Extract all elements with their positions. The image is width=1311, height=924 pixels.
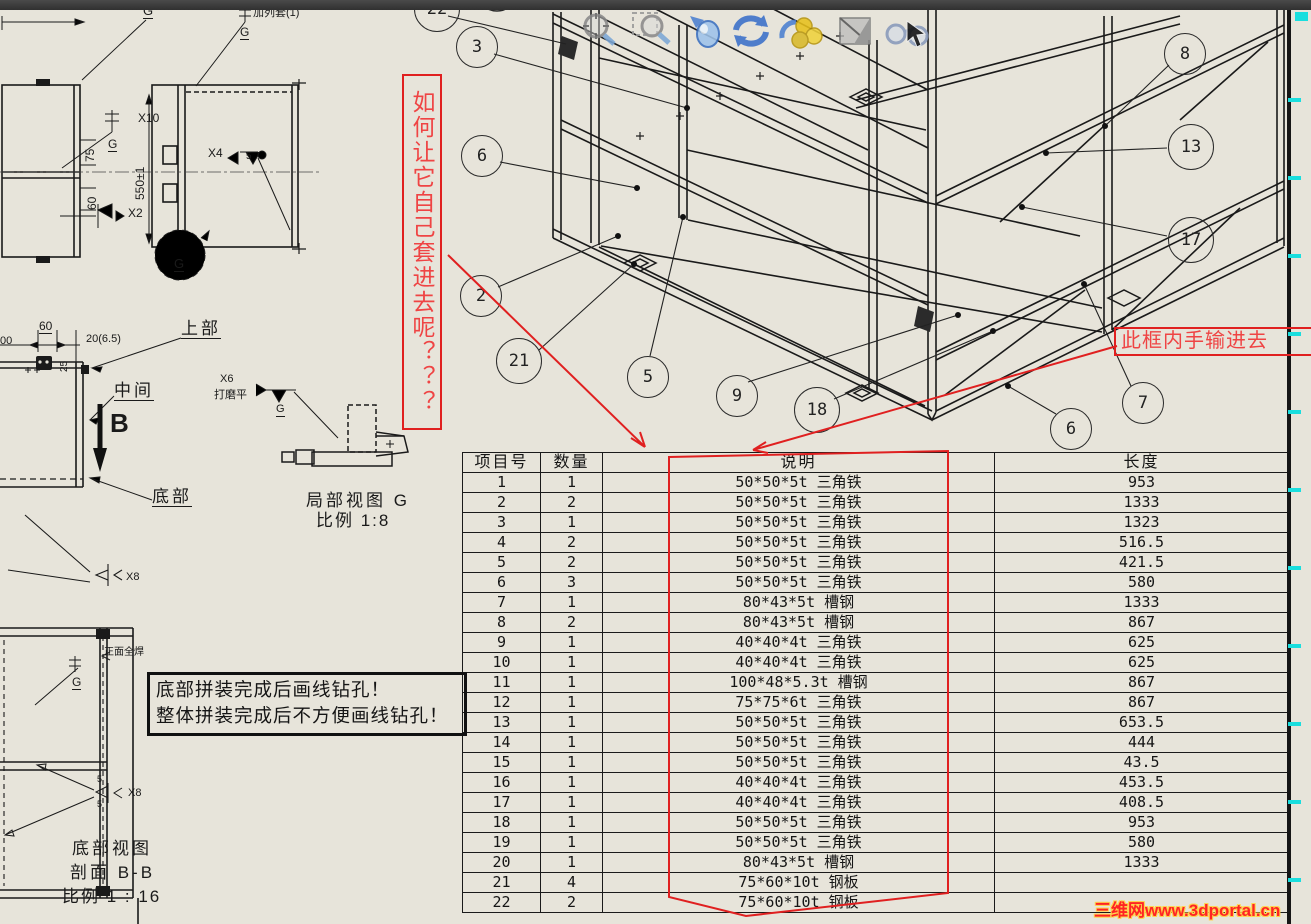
window-top-bar — [0, 0, 1311, 10]
red-annotation-layer — [0, 0, 1311, 924]
vertical-question-note[interactable]: 如何让它自己套进去呢？？？ — [402, 74, 442, 430]
watermark: 三维网www.3dportal.cn — [1094, 896, 1280, 921]
manual-input-note[interactable]: 此框内手输进去 — [1114, 327, 1311, 356]
cad-drawing-sheet: 项目号 数量 说明 长度 1150*50*5t 三角铁9532250*50*5t… — [0, 0, 1311, 924]
